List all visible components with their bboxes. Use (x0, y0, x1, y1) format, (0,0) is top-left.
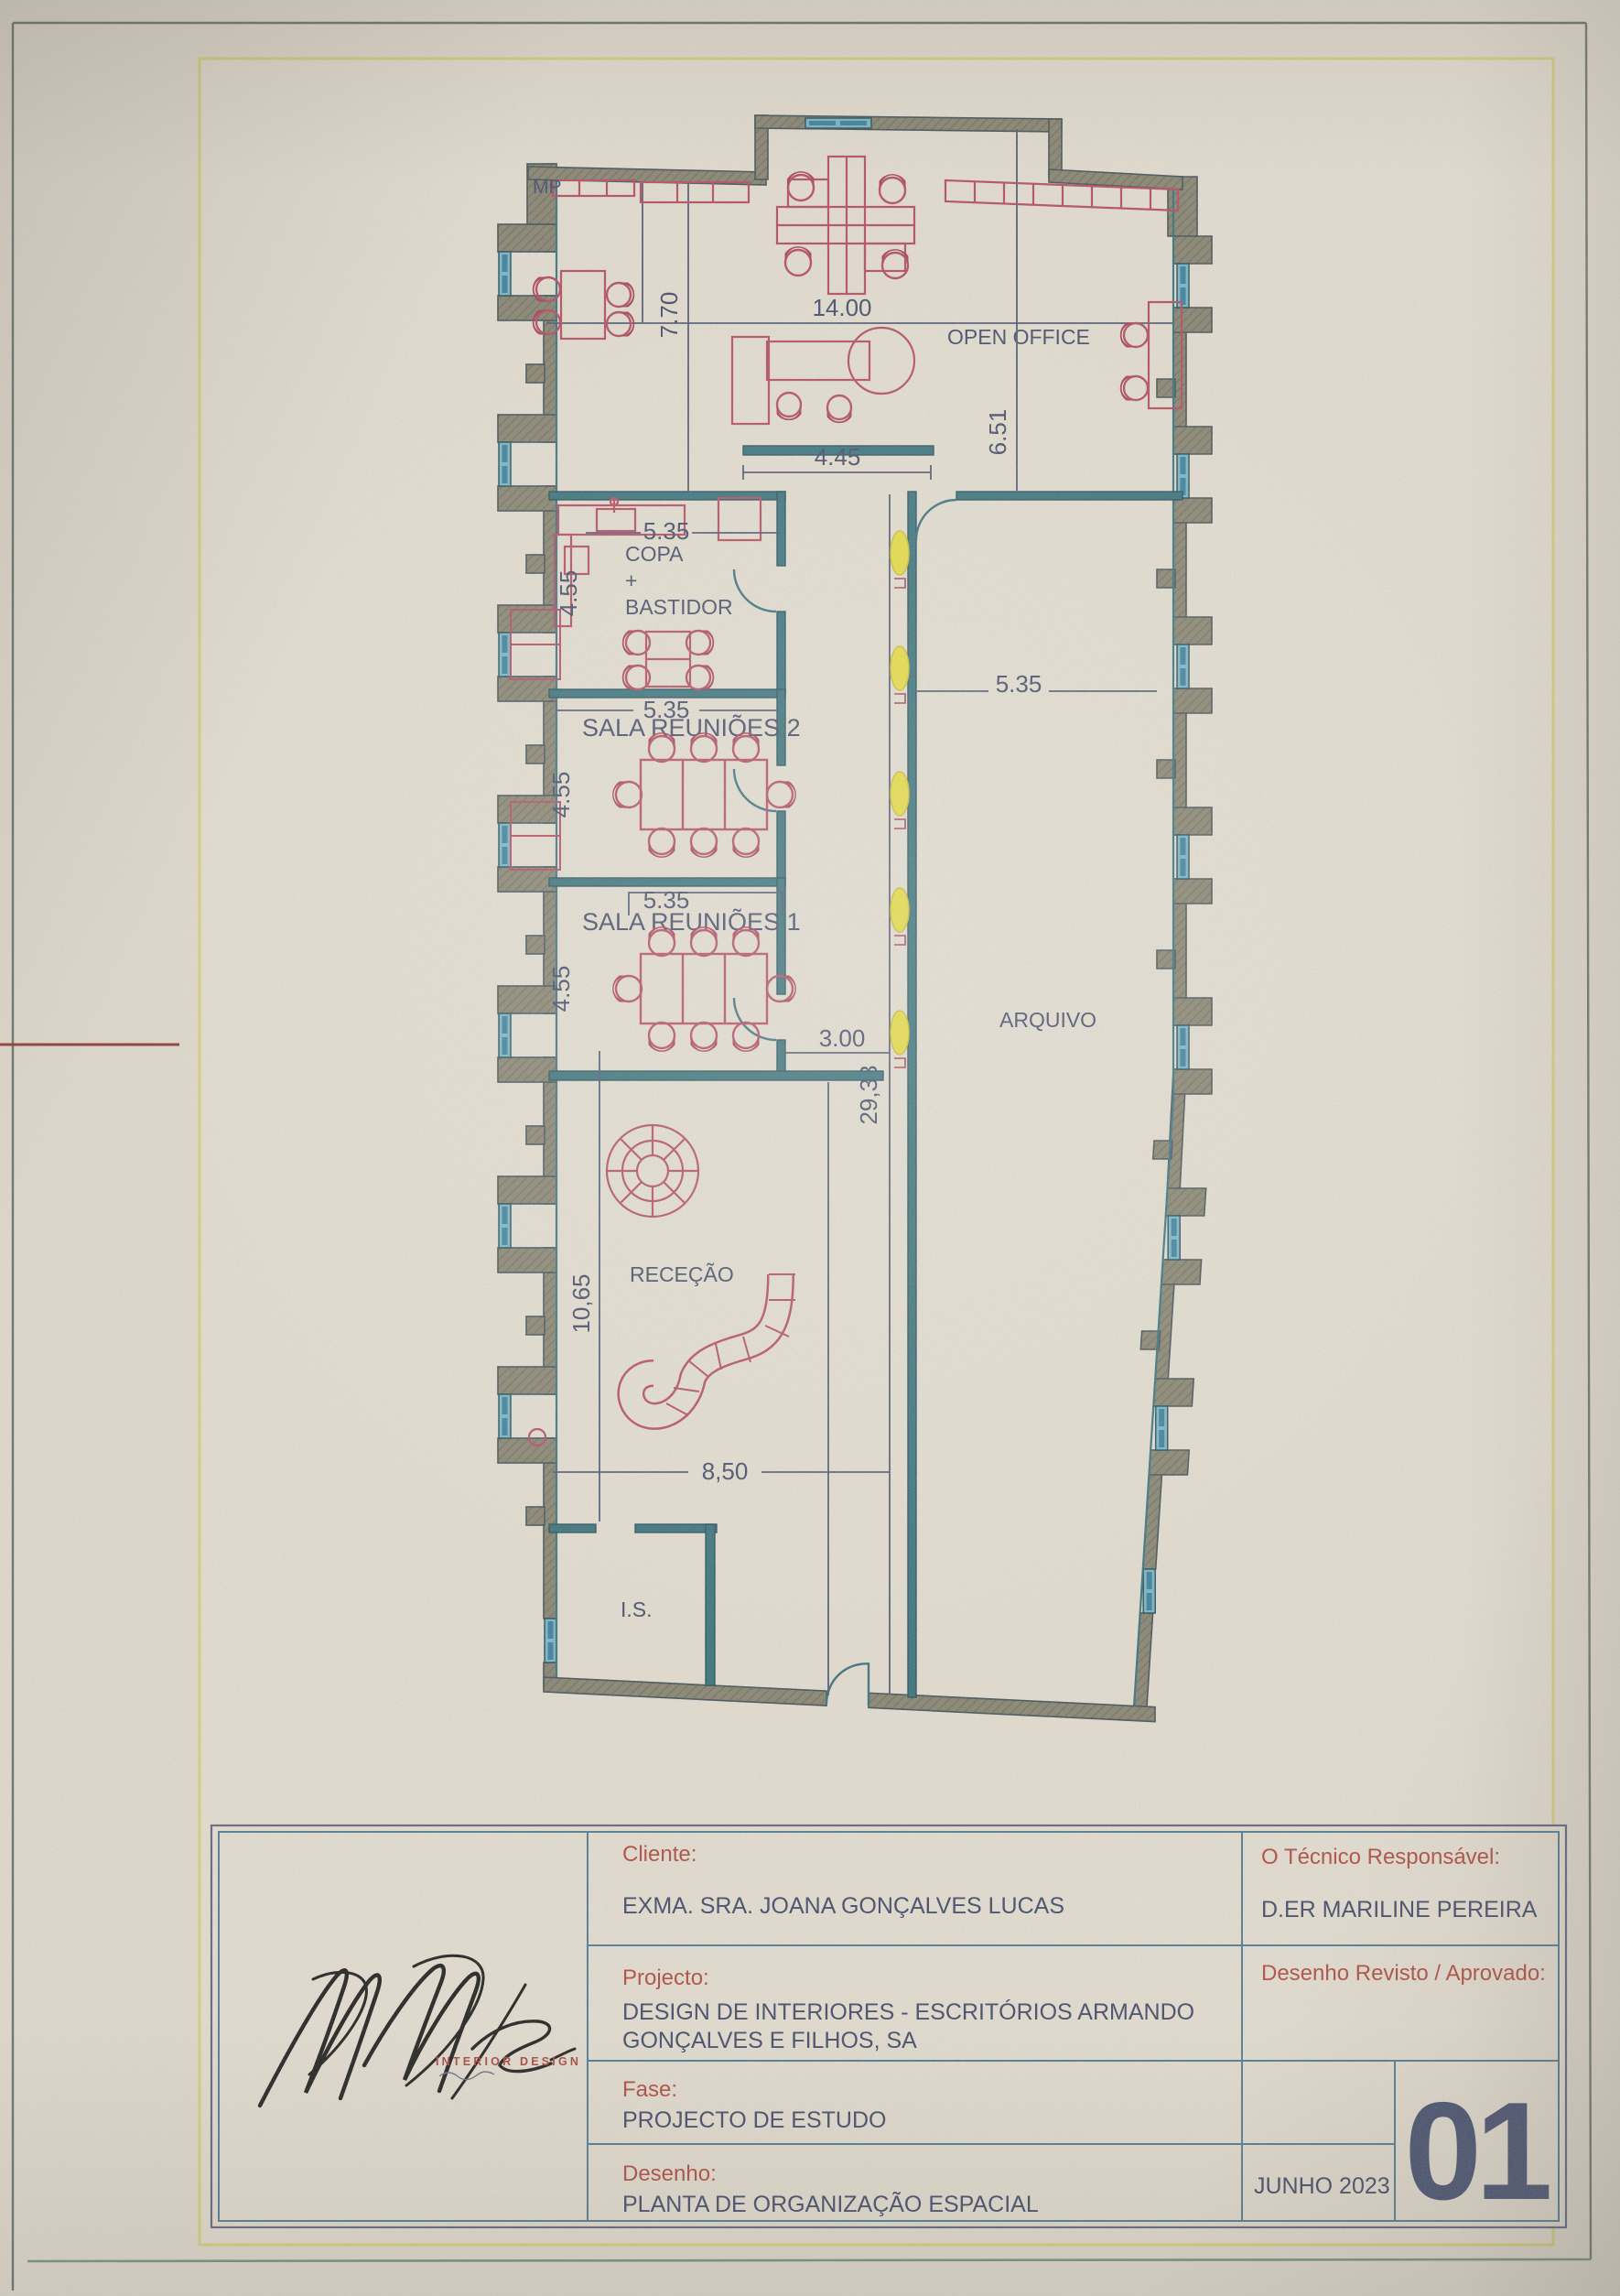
svg-text:5.35: 5.35 (643, 517, 690, 545)
svg-text:5.35: 5.35 (996, 670, 1042, 698)
svg-text:MP: MP (533, 177, 562, 198)
svg-text:RECEÇÃO: RECEÇÃO (630, 1262, 734, 1286)
svg-text:I.S.: I.S. (621, 1597, 653, 1621)
svg-text:ARQUIVO: ARQUIVO (999, 1008, 1096, 1032)
svg-text:7.70: 7.70 (655, 292, 683, 339)
svg-text:SALA REUNIÕES 1: SALA REUNIÕES 1 (582, 907, 801, 936)
svg-text:14.00: 14.00 (812, 294, 871, 321)
svg-text:5.35: 5.35 (643, 886, 690, 914)
svg-text:4.55: 4.55 (547, 966, 575, 1013)
svg-text:8,50: 8,50 (702, 1457, 749, 1485)
svg-text:+: + (625, 569, 637, 592)
svg-text:4.55: 4.55 (555, 570, 582, 617)
svg-text:OPEN OFFICE: OPEN OFFICE (947, 325, 1090, 349)
svg-text:3.00: 3.00 (819, 1024, 866, 1052)
svg-text:COPA: COPA (625, 542, 684, 566)
svg-text:SALA REUNIÕES 2: SALA REUNIÕES 2 (582, 713, 801, 742)
svg-text:6.51: 6.51 (984, 409, 1011, 456)
svg-text:BASTIDOR: BASTIDOR (625, 595, 733, 619)
svg-text:10,65: 10,65 (567, 1273, 595, 1333)
svg-text:5.35: 5.35 (643, 696, 690, 723)
svg-text:4.45: 4.45 (815, 443, 861, 471)
svg-text:4.55: 4.55 (547, 772, 575, 818)
